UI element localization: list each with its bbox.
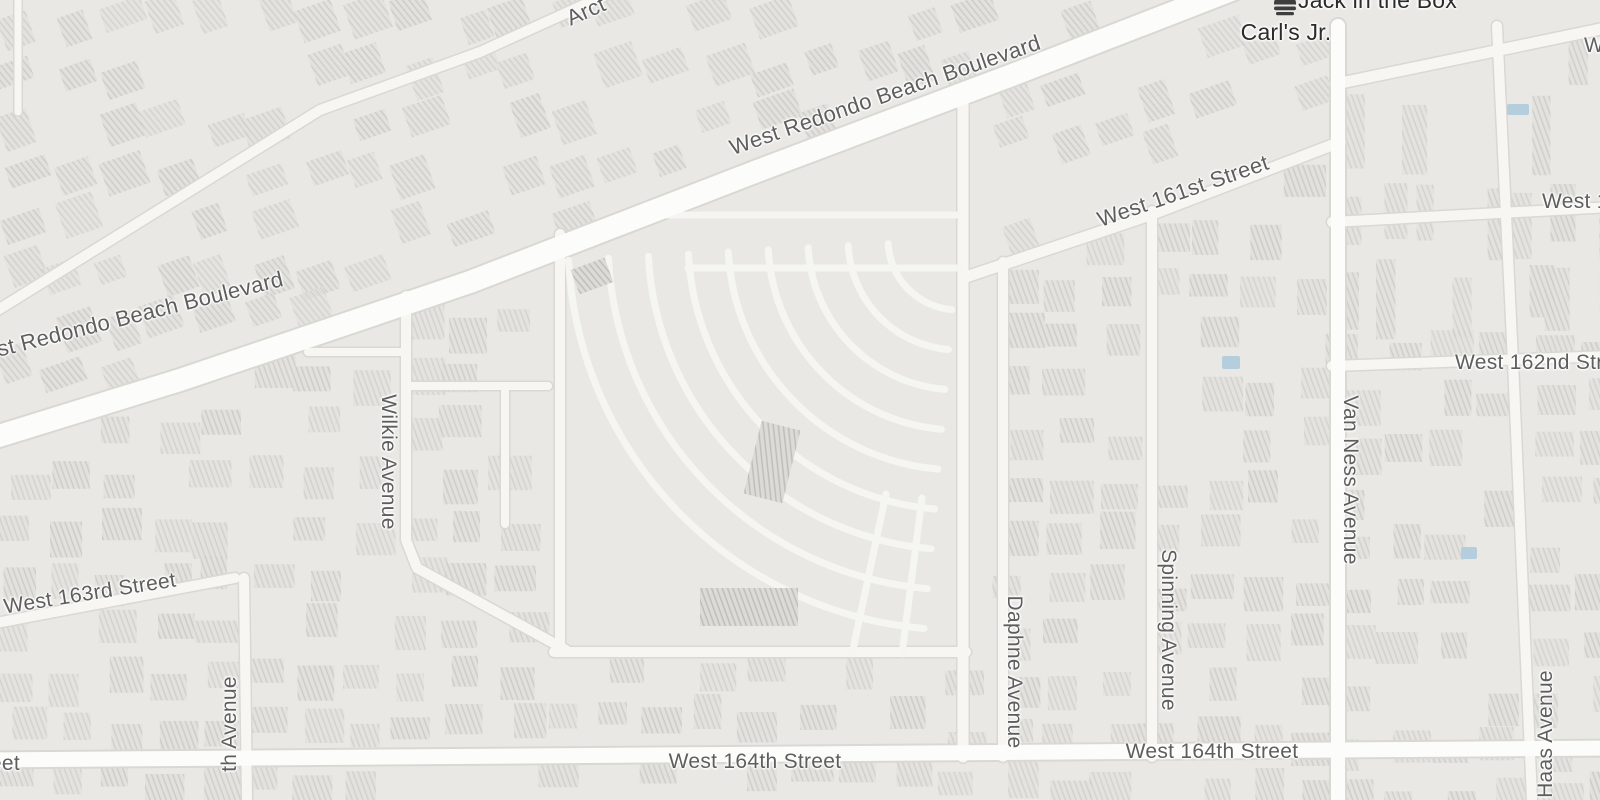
street-label-van-ness-avenue: Van Ness Avenue (1338, 395, 1362, 565)
street-label-west-162nd: West 162nd Street (1455, 351, 1600, 375)
pool (1222, 356, 1240, 369)
street-label-wilkie-avenue: Wilkie Avenue (376, 394, 400, 529)
street-label-daphne-avenue: Daphne Avenue (1002, 596, 1026, 749)
pool (1461, 547, 1477, 559)
poi-label-carls-jr[interactable]: Carl's Jr. (1241, 19, 1332, 45)
street-label-west-164th-a: West 164th Street (669, 750, 842, 774)
avenue-road-left (244, 578, 247, 800)
street-label-haas-avenue: Haas Avenue (1534, 670, 1558, 798)
street-label-west-164th-b: West 164th Street (1126, 740, 1299, 764)
street-label-west-161st-east-partial: West 1 (1542, 190, 1600, 214)
poi-label-jack-in-the-box[interactable]: Jack in the Box (1298, 0, 1457, 13)
pool (1507, 104, 1529, 115)
street-label-west-partial: W (1584, 34, 1600, 58)
street-label-avenue-partial: th Avenue (218, 676, 242, 772)
street-label-spinning-avenue: Spinning Avenue (1156, 549, 1180, 711)
street-label-west-164th-left-clipped: West 164th Street (0, 752, 20, 776)
map-canvas[interactable]: West Redondo Beach Boulevard West Redond… (0, 0, 1600, 800)
burger-icon[interactable] (1272, 0, 1298, 17)
